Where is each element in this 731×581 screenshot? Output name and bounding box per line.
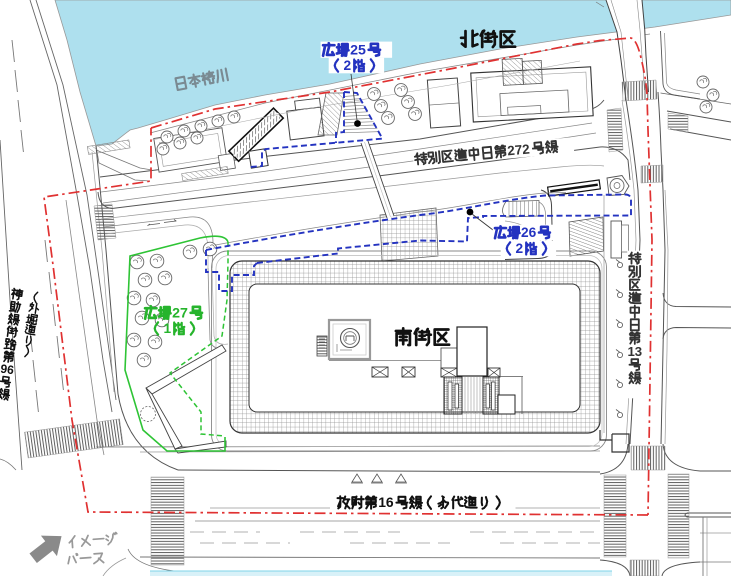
svg-text:25: 25 [350,43,366,59]
svg-text:27: 27 [172,306,188,322]
svg-text:272: 272 [507,141,531,158]
svg-text:1: 1 [164,321,172,336]
svg-text:26: 26 [521,225,537,240]
svg-text:16: 16 [378,494,394,510]
svg-text:2: 2 [344,58,352,73]
svg-text:2: 2 [516,241,524,256]
svg-text:96: 96 [0,362,15,378]
svg-text:13: 13 [627,344,642,359]
